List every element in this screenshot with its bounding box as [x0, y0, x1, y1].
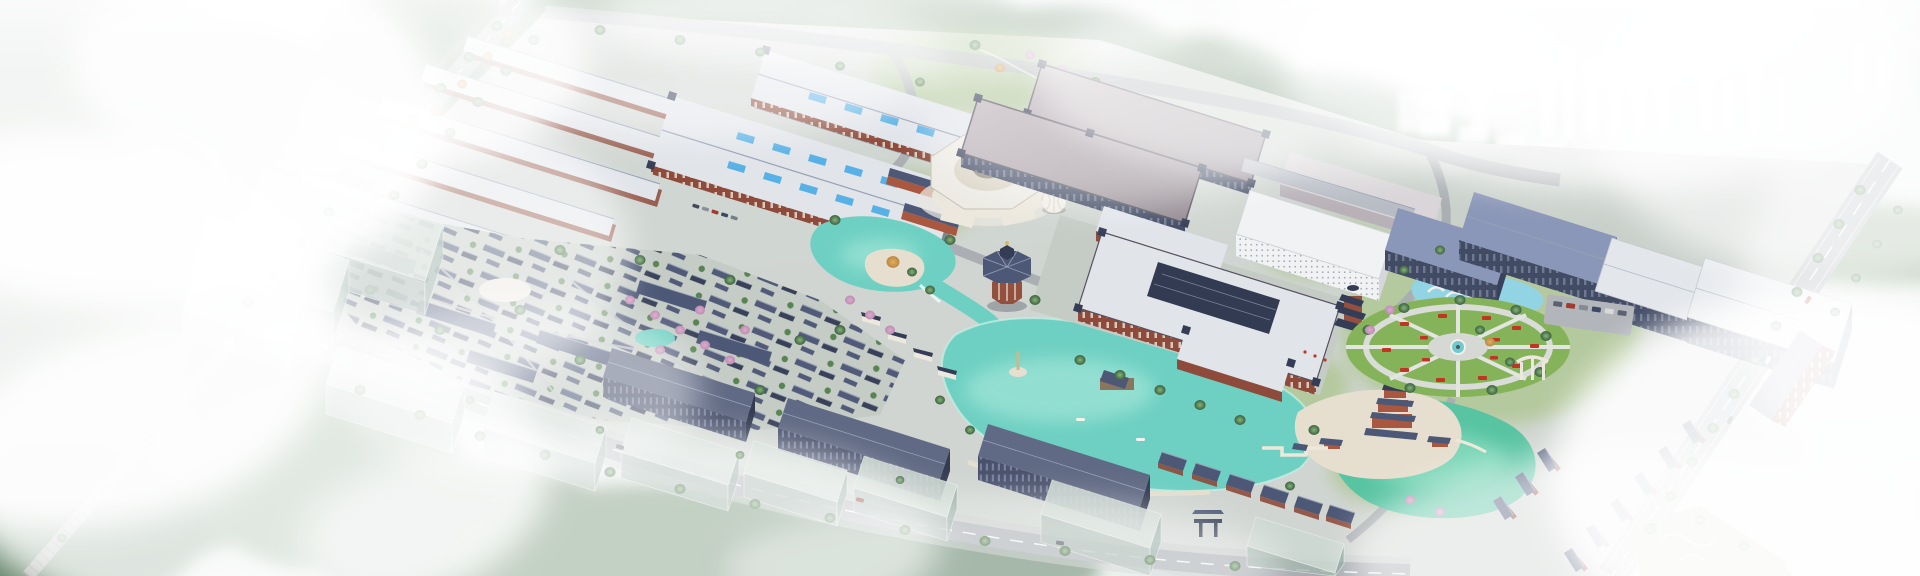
masterplan-svg	[0, 0, 1920, 576]
masterplan-rendering	[0, 0, 1920, 576]
top-haze	[0, 0, 1920, 80]
lake-sculpture	[1017, 352, 1020, 370]
white-paifang-gate	[1517, 357, 1548, 380]
